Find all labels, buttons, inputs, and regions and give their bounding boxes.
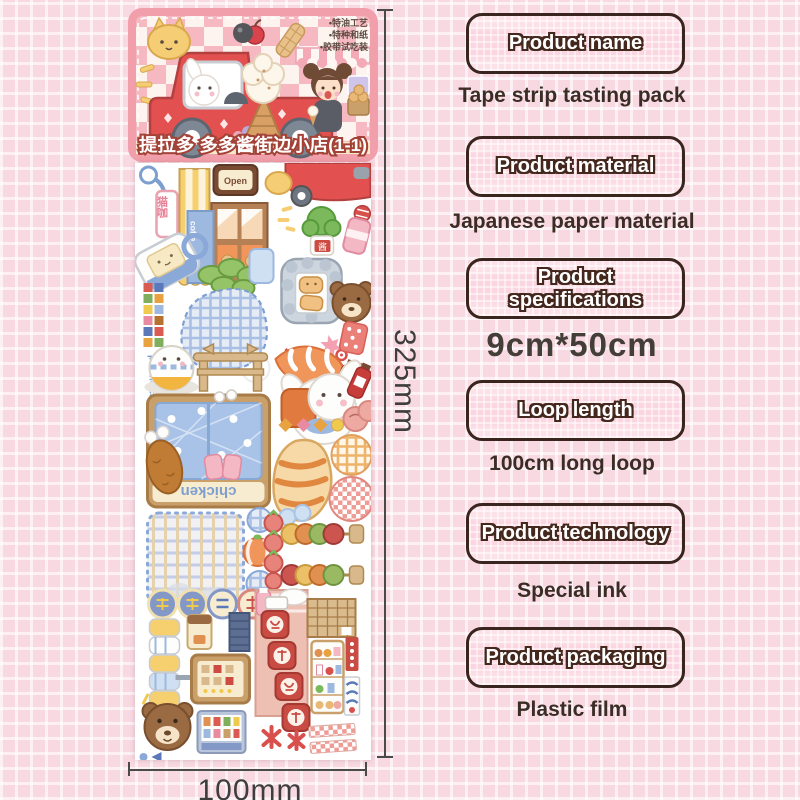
spec-badge-product-name: Product name xyxy=(466,13,685,74)
spec-badge-label: Product specifications xyxy=(475,266,676,311)
spec-badge-label: Product material xyxy=(497,155,655,177)
orange-plaid-patch-icon xyxy=(332,435,372,475)
pink-bottle-icon xyxy=(342,203,371,255)
height-dimension-label: 325mm xyxy=(388,329,420,429)
bear-face-icon xyxy=(331,282,372,322)
dimension-cap xyxy=(377,756,393,758)
feature-line: •胶带试吃装 xyxy=(320,41,369,52)
open-sign: Open xyxy=(224,176,247,186)
gingham-tape-icon xyxy=(309,723,357,753)
spec-value-product-specifications: 9cm*50cm xyxy=(420,326,724,364)
spec-value-product-name: Tape strip tasting pack xyxy=(420,84,724,108)
peeking-bear-icon xyxy=(143,703,193,750)
spec-value-loop-length: 100cm long loop xyxy=(420,452,724,476)
red-glyphs-decor xyxy=(264,727,304,749)
spec-badge-label: Product packaging xyxy=(485,646,665,668)
tape-strip-illustration: 猫咖 Open coffe xyxy=(135,163,371,760)
spec-value-product-packaging: Plastic film xyxy=(420,698,724,722)
spec-badge-label: Loop length xyxy=(518,399,632,421)
height-dimension-line xyxy=(384,10,386,758)
street-cafe xyxy=(140,590,267,760)
counter-goods xyxy=(348,76,369,115)
spec-badge-product-material: Product material xyxy=(466,136,685,197)
package-label-card: •特油工艺 •特种和纸 •胶带试吃装 提拉多 多多酱街边小店(1-1) xyxy=(127,8,379,162)
bonsai-jar-icon: 酱 xyxy=(303,207,341,255)
chicken-banner-text: chicken xyxy=(181,483,237,500)
width-dimension-line xyxy=(129,769,367,771)
red-plaid-patch-icon xyxy=(330,477,372,521)
jar-label: 酱 xyxy=(318,241,327,252)
spec-badge-label: Product technology xyxy=(482,522,670,544)
color-swatches-icon xyxy=(144,283,164,347)
feature-line: •特油工艺 xyxy=(329,17,368,28)
kebab-skewer-icon xyxy=(282,565,364,585)
snack-shop xyxy=(256,588,360,753)
kebab-skewer-icon xyxy=(282,524,364,544)
spec-badge-product-packaging: Product packaging xyxy=(466,627,685,688)
width-dimension-label: 100mm xyxy=(170,774,330,800)
tomato-skewer-icon xyxy=(265,511,283,589)
spec-badge-label: Product name xyxy=(509,32,642,54)
spec-badge-loop-length: Loop length xyxy=(466,380,685,441)
feature-line: •特种和纸 xyxy=(329,29,368,40)
product-infographic: 325mm 100mm xyxy=(0,0,800,800)
punch-hole-icon xyxy=(233,23,253,43)
spec-badge-product-technology: Product technology xyxy=(466,503,685,564)
dimension-cap xyxy=(365,762,367,776)
cat-cafe-sign: 猫咖 xyxy=(156,195,169,219)
label-illustration: •特油工艺 •特种和纸 •胶带试吃装 提拉多 多多酱街边小店(1-1) xyxy=(127,8,379,162)
dimension-cap xyxy=(377,9,393,11)
bun-icon xyxy=(359,401,372,421)
dimension-cap xyxy=(128,762,130,776)
spec-value-product-material: Japanese paper material xyxy=(420,210,724,234)
spec-value-product-technology: Special ink xyxy=(420,579,724,603)
dotted-patch-icon xyxy=(339,321,369,355)
blue-jar-icon xyxy=(250,249,274,283)
tape-strip-image: 猫咖 Open coffe xyxy=(135,163,371,760)
label-title: 提拉多 多多酱街边小店(1-1) xyxy=(139,135,367,155)
spec-badge-product-specifications: Product specifications xyxy=(466,258,685,319)
